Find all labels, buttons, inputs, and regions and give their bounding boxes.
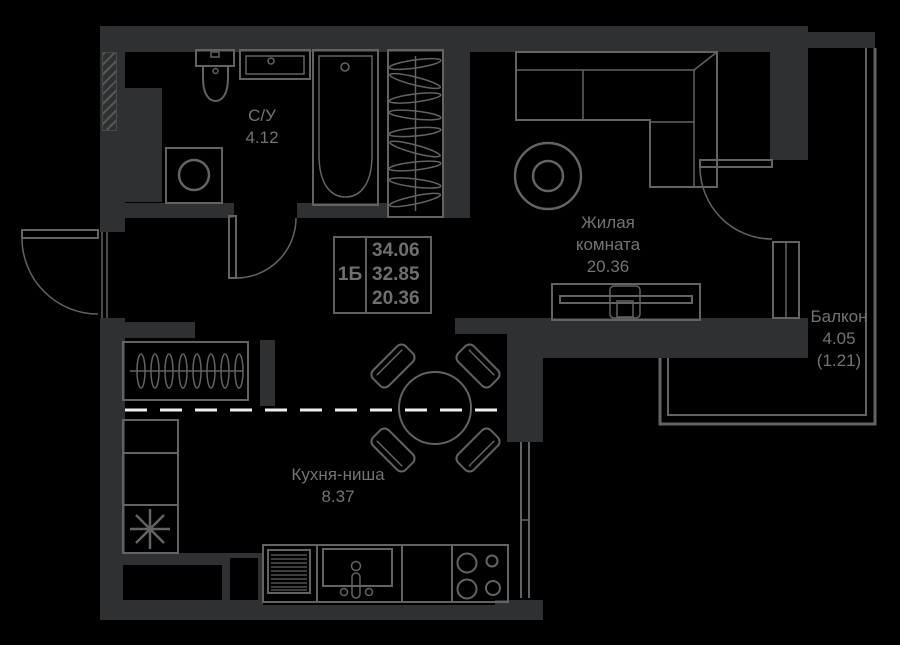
unit-area-total: 34.06 xyxy=(372,239,430,263)
kitchen-label: Кухня-ниша 8.37 xyxy=(278,464,398,508)
unit-type: 1Б xyxy=(335,238,367,312)
balcony-area-secondary: (1.21) xyxy=(795,350,883,372)
dining-table xyxy=(399,372,471,444)
bathtub xyxy=(313,50,378,205)
living-room-name-line1: Жилая xyxy=(581,213,635,232)
balcony-label: Балкон 4.05 (1.21) xyxy=(795,306,883,372)
floor-plan: С/У 4.12 Жилая комната 20.36 Кухня-ниша … xyxy=(0,0,900,645)
living-room-name-line2: комната xyxy=(576,235,640,254)
living-room-area: 20.36 xyxy=(548,256,668,278)
kitchen-name: Кухня-ниша xyxy=(291,465,384,484)
balcony-door xyxy=(700,160,772,239)
unit-info-box: 1Б 34.06 32.85 20.36 xyxy=(333,236,432,314)
washing-machine xyxy=(166,148,222,203)
unit-area-living: 20.36 xyxy=(372,287,430,311)
corner-sofa xyxy=(516,52,717,187)
floor-plan-drawing xyxy=(0,0,900,645)
unit-areas: 34.06 32.85 20.36 xyxy=(367,238,430,312)
tv-stand xyxy=(552,284,700,320)
balcony-name: Балкон xyxy=(810,307,867,326)
bathroom-label: С/У 4.12 xyxy=(222,105,302,149)
kitchen-sink xyxy=(323,549,392,598)
kitchen-area: 8.37 xyxy=(278,486,398,508)
bathroom-door xyxy=(229,216,296,278)
hall-closet-hangers xyxy=(123,342,248,400)
bathroom-sink xyxy=(240,50,310,79)
stove-burners xyxy=(458,554,501,599)
balcony-area: 4.05 xyxy=(795,328,883,350)
toilet xyxy=(196,50,234,101)
dish-drainer xyxy=(268,550,310,593)
wardrobe-hangers xyxy=(388,50,443,217)
living-room-label: Жилая комната 20.36 xyxy=(548,212,668,278)
round-chair xyxy=(515,143,581,209)
bathroom-area: 4.12 xyxy=(222,127,302,149)
unit-area-reduced: 32.85 xyxy=(372,263,430,287)
kitchen-window xyxy=(521,442,529,598)
bathroom-name: С/У xyxy=(248,106,276,125)
entry-door xyxy=(22,230,107,318)
fridge-snowflake-icon xyxy=(130,509,170,549)
